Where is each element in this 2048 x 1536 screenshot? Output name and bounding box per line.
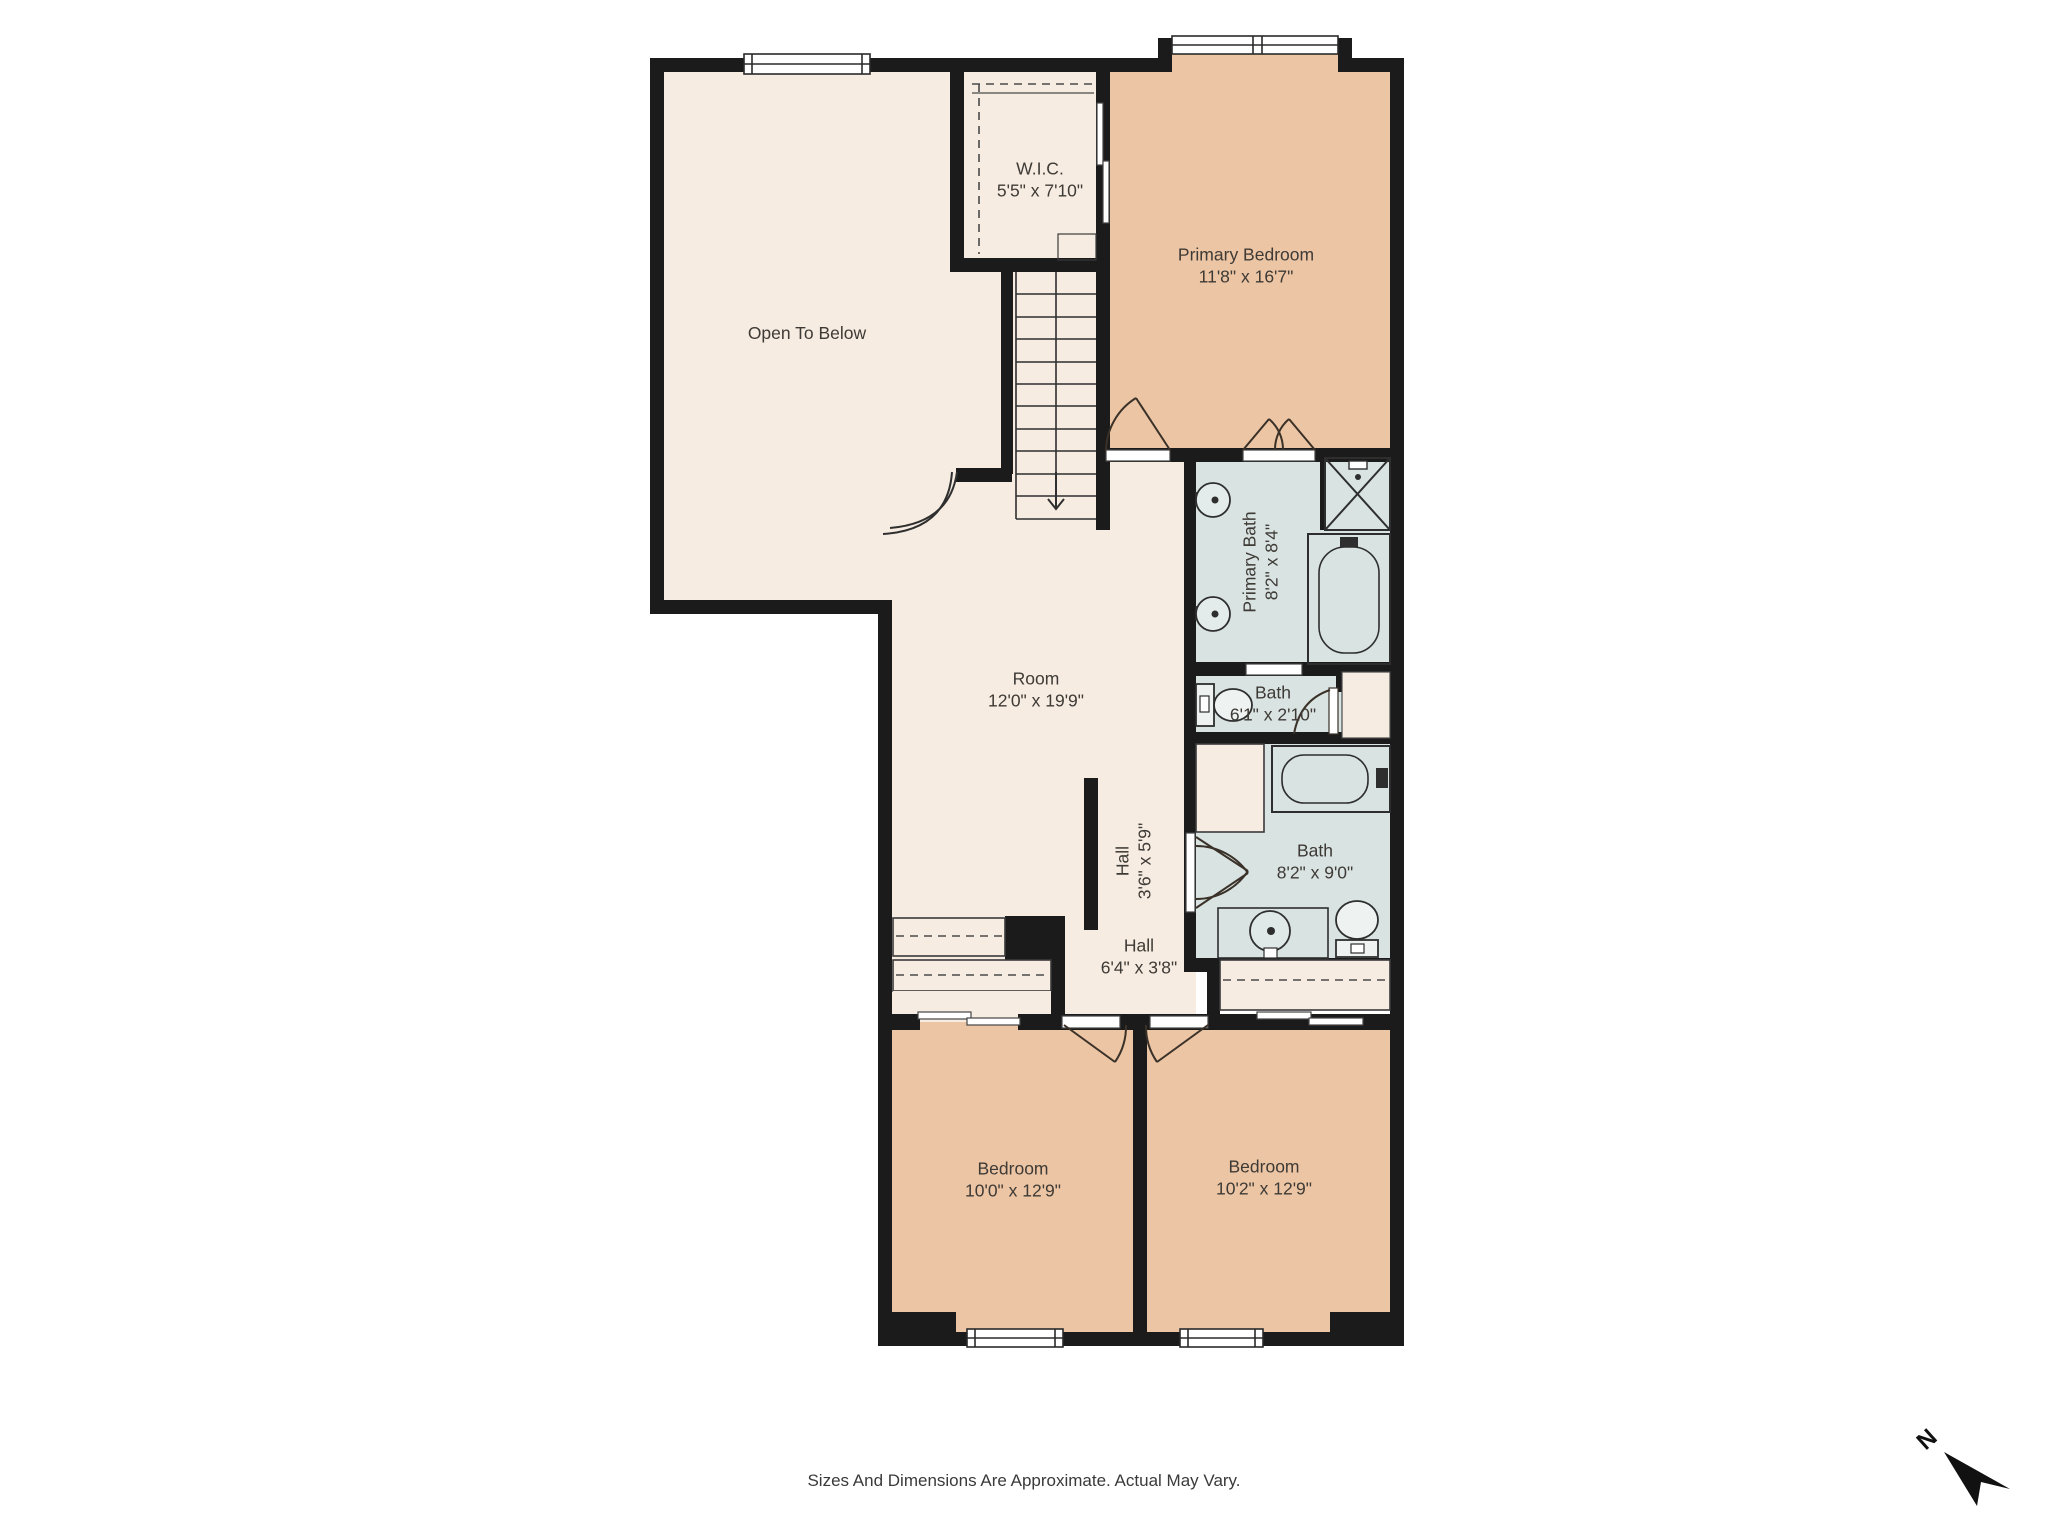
room-label-hall-vertical: Hall 3'6" x 5'9" (1112, 823, 1157, 900)
window-open-to-below (744, 54, 870, 74)
room-dims: 8'2" x 9'0" (1277, 862, 1354, 884)
room-dims: 10'2" x 12'9" (1216, 1178, 1312, 1200)
room-label-hall: Hall 6'4" x 3'8" (1101, 935, 1178, 980)
room-name: Bedroom (977, 1159, 1048, 1179)
room-label-wic: W.I.C. 5'5" x 7'10" (997, 158, 1083, 203)
room-label-bath: Bath 8'2" x 9'0" (1277, 840, 1354, 885)
room-dims: 6'4" x 3'8" (1101, 957, 1178, 979)
room-name: Primary Bath (1240, 511, 1260, 612)
sink-icon-primary-2 (1196, 597, 1230, 631)
room-dims: 12'0" x 19'9" (988, 690, 1084, 712)
room-name: Hall (1124, 936, 1154, 956)
sink-icon-primary-1 (1196, 483, 1230, 517)
window-primary-bedroom-bay (1172, 36, 1338, 54)
disclaimer-text: Sizes And Dimensions Are Approximate. Ac… (0, 1471, 2048, 1491)
room-name: Bedroom (1228, 1157, 1299, 1177)
room-dims: 6'1" x 2'10" (1230, 704, 1316, 726)
room-name: Open To Below (748, 323, 866, 343)
room-label-primary-bath: Primary Bath 8'2" x 8'4" (1239, 511, 1284, 612)
room-label-bath-small: Bath 6'1" x 2'10" (1230, 682, 1316, 727)
floorplan-canvas: N (0, 0, 2048, 1536)
room-dims: 8'2" x 8'4" (1261, 511, 1283, 612)
room-dims: 11'8" x 16'7" (1178, 266, 1314, 288)
room-name: W.I.C. (1016, 159, 1064, 179)
room-label-open-to-below: Open To Below (748, 322, 866, 344)
room-name: Bath (1297, 841, 1333, 861)
window-bedroom-left (967, 1329, 1063, 1347)
room-dims: 10'0" x 12'9" (965, 1180, 1061, 1202)
room-label-bedroom-right: Bedroom 10'2" x 12'9" (1216, 1156, 1312, 1201)
compass-north-label: N (1912, 1424, 1943, 1456)
room-name: Hall (1113, 846, 1133, 876)
room-name: Room (1013, 669, 1060, 689)
toilet-icon-bath (1336, 901, 1378, 957)
floorplan-page: N Open To Below W.I.C. 5'5" x 7'10" Prim… (0, 0, 2048, 1536)
room-label-primary-bedroom: Primary Bedroom 11'8" x 16'7" (1178, 244, 1314, 289)
room-name: Primary Bedroom (1178, 245, 1314, 265)
compass: N (1912, 1424, 2010, 1506)
room-name: Bath (1255, 683, 1291, 703)
window-bedroom-right (1180, 1329, 1263, 1347)
room-label-room: Room 12'0" x 19'9" (988, 668, 1084, 713)
room-dims: 3'6" x 5'9" (1134, 823, 1156, 900)
room-dims: 5'5" x 7'10" (997, 180, 1083, 202)
room-label-bedroom-left: Bedroom 10'0" x 12'9" (965, 1158, 1061, 1203)
